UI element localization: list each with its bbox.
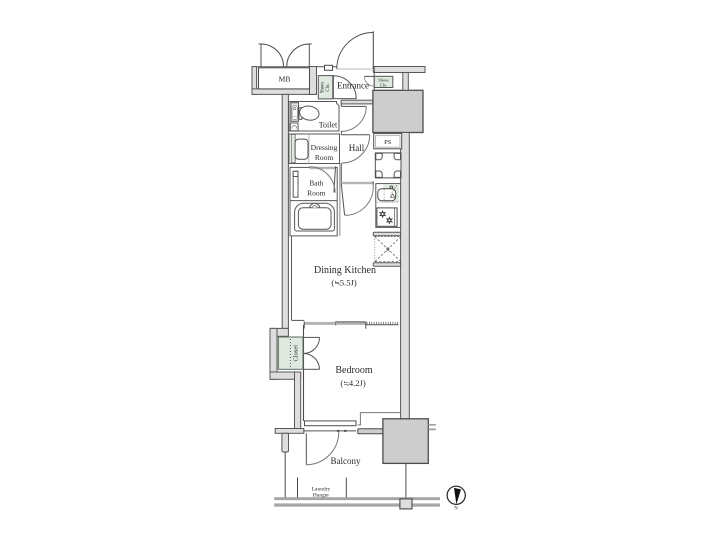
svg-text:Toilet: Toilet [319,120,338,129]
svg-text:(≒4.2J): (≒4.2J) [340,378,365,388]
svg-text:Clo.: Clo. [326,83,331,91]
svg-text:Balcony: Balcony [331,456,361,466]
svg-text:Shoes: Shoes [321,82,326,94]
svg-text:Bedroom: Bedroom [335,365,372,376]
svg-text:Room: Room [315,153,334,162]
svg-text:Dining Kitchen: Dining Kitchen [314,265,376,276]
svg-text:Hall: Hall [349,143,365,153]
svg-text:(≒5.5J): (≒5.5J) [331,278,356,288]
svg-text:PS: PS [384,139,392,146]
svg-text:Closet: Closet [292,345,299,362]
svg-text:N: N [454,507,458,512]
svg-text:Entrance: Entrance [337,81,369,91]
svg-text:Bath: Bath [309,179,323,188]
svg-text:Laundry: Laundry [312,486,331,492]
svg-text:R: R [386,248,390,254]
svg-text:Clo.: Clo. [380,82,387,87]
svg-text:MB: MB [279,75,291,84]
svg-text:Room: Room [307,188,326,197]
svg-text:Dressing: Dressing [311,143,338,152]
